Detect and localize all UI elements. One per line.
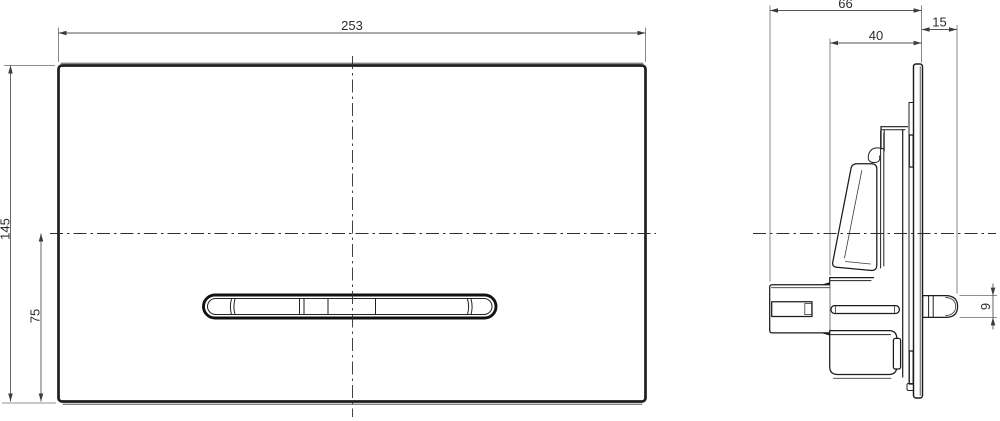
actuating-lever — [833, 164, 877, 271]
cistern-housing — [770, 127, 908, 379]
arrowhead — [638, 31, 646, 36]
retaining-clip-hook — [868, 148, 884, 163]
dimension-label-pin-height: 9 — [978, 303, 993, 310]
button-pin-outline — [923, 296, 958, 318]
lower-housing-block — [830, 331, 897, 375]
flush-button — [204, 295, 497, 318]
dimension-label-housing-depth: 40 — [869, 28, 883, 43]
arrowhead — [830, 41, 838, 46]
arrowhead — [39, 394, 44, 402]
dimension-label-plate-protrusion: 15 — [932, 15, 946, 30]
arrowhead — [991, 317, 996, 325]
frame-strip-detail — [909, 135, 913, 167]
dimension-width: 253 — [59, 18, 646, 62]
arrowhead — [8, 394, 13, 402]
dimension-button-axis: 75 — [28, 234, 44, 402]
arrowhead — [922, 27, 930, 32]
arrowhead — [39, 234, 44, 242]
cover-plate-profile — [914, 64, 923, 398]
arrowhead — [914, 41, 922, 46]
dimension-label-axis: 75 — [28, 309, 43, 323]
side-view: 66 15 40 9 — [753, 0, 997, 398]
arrowhead — [59, 31, 67, 36]
button-pin — [923, 296, 958, 318]
arrowhead — [770, 8, 778, 13]
front-view: 253 145 75 — [0, 18, 656, 417]
dimension-height: 145 — [0, 66, 56, 404]
dimension-label-height: 145 — [0, 218, 13, 240]
frame-strip-detail — [909, 351, 913, 384]
flush-plate-drawing: 253 145 75 — [0, 0, 1000, 421]
dimension-label-width: 253 — [341, 18, 363, 33]
arrowhead — [991, 288, 996, 296]
arrowhead — [949, 27, 957, 32]
dimension-plate-protrusion: 15 — [922, 15, 957, 294]
arrowhead — [914, 8, 922, 13]
dimension-label-total-depth: 66 — [838, 0, 852, 11]
push-rod — [831, 306, 899, 314]
lower-block-recess — [893, 338, 900, 369]
arrowhead — [8, 66, 13, 74]
technical-drawing-canvas: 253 145 75 — [0, 0, 1000, 421]
dimension-pin-height: 9 — [960, 284, 998, 330]
